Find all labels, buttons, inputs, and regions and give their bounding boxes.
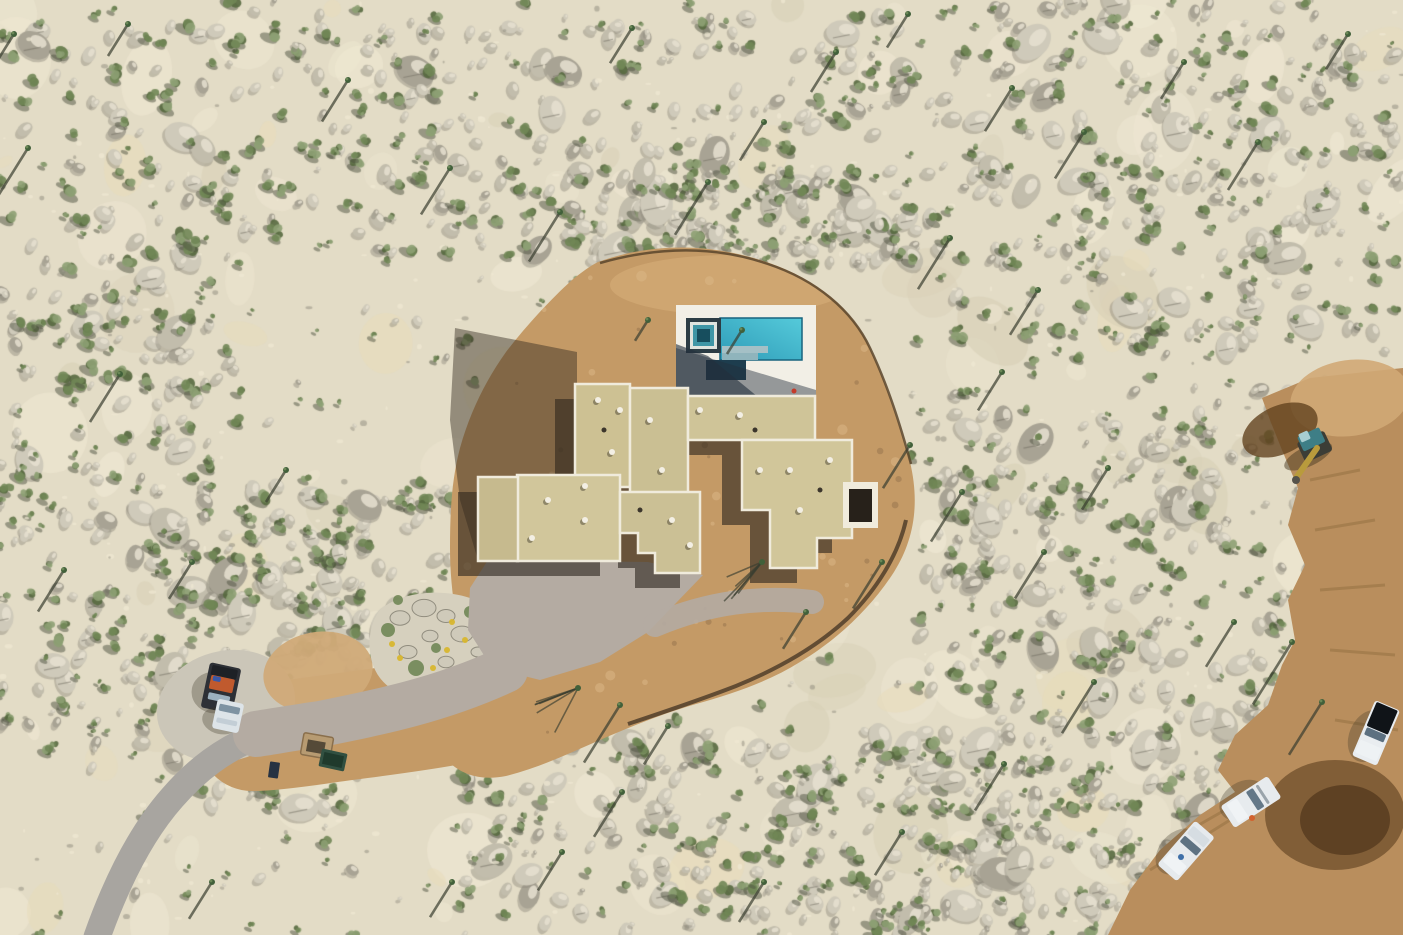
desert-terrain-canvas <box>0 0 1403 935</box>
aerial-desert-home-photo <box>0 0 1403 935</box>
